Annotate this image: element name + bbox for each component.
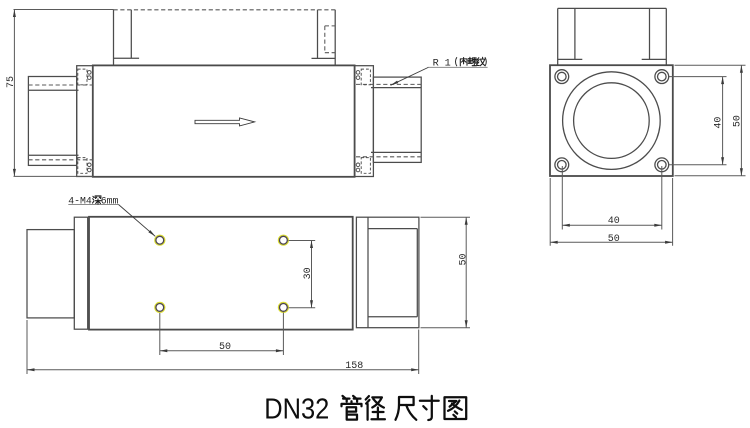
svg-text:158: 158 (345, 361, 363, 372)
svg-text:75: 75 (6, 76, 17, 88)
svg-text:50: 50 (219, 342, 231, 353)
svg-text:DN32: DN32 (264, 394, 329, 426)
svg-text:40: 40 (608, 216, 620, 227)
svg-text:30: 30 (303, 267, 314, 279)
svg-text:50: 50 (733, 115, 744, 127)
svg-text:50: 50 (458, 253, 469, 265)
svg-text:40: 40 (714, 117, 725, 129)
svg-text:50: 50 (608, 234, 620, 245)
